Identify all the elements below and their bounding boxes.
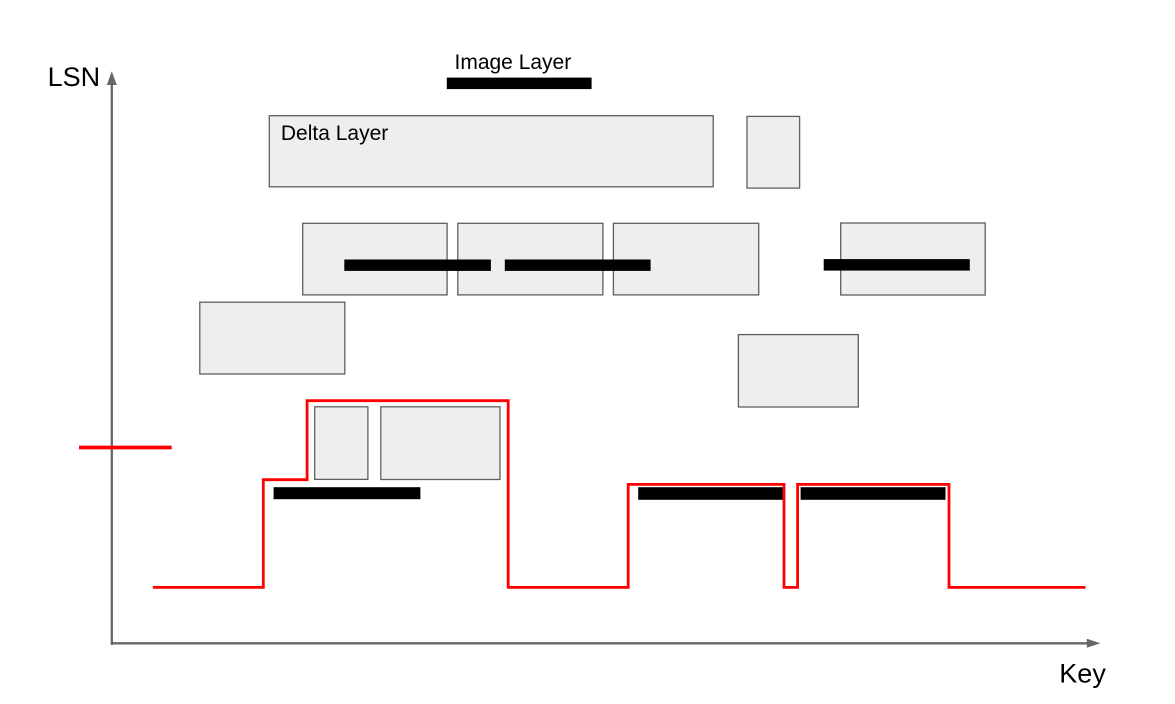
- svg-text:Delta Layer: Delta Layer: [281, 122, 388, 145]
- svg-text:LSN: LSN: [48, 62, 101, 92]
- svg-text:Key: Key: [1059, 658, 1106, 688]
- svg-text:Image Layer: Image Layer: [455, 51, 572, 74]
